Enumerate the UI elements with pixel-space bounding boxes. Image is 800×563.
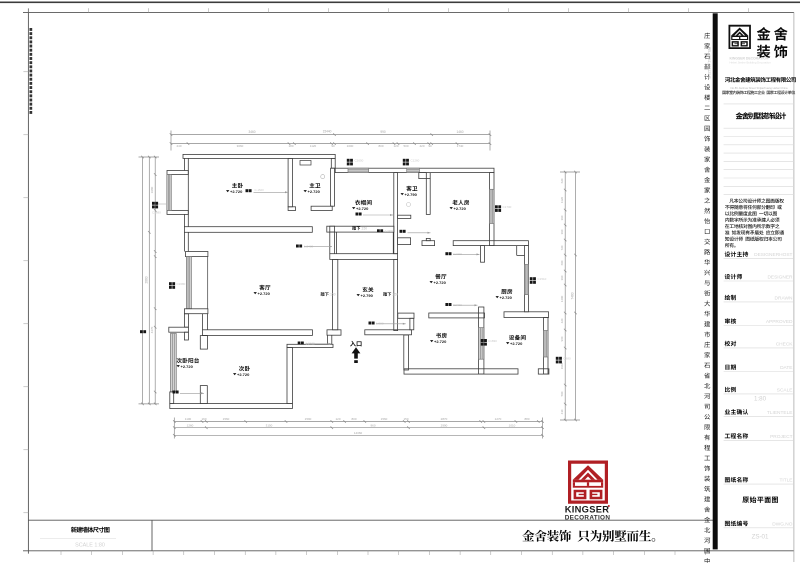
svg-text:TEL:(0311)85212345: TEL:(0311)85212345 (707, 47, 711, 79)
svg-text:+2.790: +2.790 (361, 293, 374, 298)
svg-text:C2400: C2400 (453, 303, 462, 307)
svg-text:C1510: C1510 (538, 277, 547, 281)
svg-text:420: 420 (560, 318, 564, 323)
svg-text:DESIGNER: DESIGNER (767, 275, 793, 281)
svg-text:2860: 2860 (144, 276, 148, 283)
svg-text:1590: 1590 (305, 417, 312, 421)
svg-text:2870: 2870 (441, 417, 448, 421)
svg-text:DESIGNERHOST: DESIGNERHOST (754, 252, 792, 258)
svg-text:1000: 1000 (347, 144, 354, 148)
svg-text:C2680: C2680 (177, 282, 186, 286)
svg-text:No.86 Jianhua Street Shijiazhu: No.86 Jianhua Street Shijiazhuang Hebei … (731, 86, 788, 90)
svg-text:SCALE 1:80: SCALE 1:80 (75, 543, 105, 549)
svg-text:3460: 3460 (248, 130, 255, 134)
svg-text:C2050: C2050 (355, 159, 364, 163)
svg-text:410: 410 (560, 409, 564, 414)
svg-text:SCALE: SCALE (777, 388, 793, 394)
svg-text:+2.720: +2.720 (356, 206, 369, 211)
svg-text:120: 120 (393, 144, 398, 148)
svg-text:DWG.NO: DWG.NO (772, 521, 793, 527)
svg-text:ZS-01: ZS-01 (752, 534, 769, 541)
svg-text:C880: C880 (564, 357, 572, 361)
svg-text:1270: 1270 (495, 417, 502, 421)
svg-text:+2.720: +2.720 (500, 295, 513, 300)
svg-text:1260: 1260 (187, 423, 194, 427)
svg-text::150: :150 (361, 227, 367, 231)
svg-text:+2.720: +2.720 (434, 339, 447, 344)
svg-text:500: 500 (403, 144, 408, 148)
svg-text:TLIENTELE: TLIENTELE (767, 410, 793, 416)
svg-text:+2.720: +2.720 (308, 189, 321, 194)
svg-text:DATE: DATE (780, 365, 792, 371)
svg-text:15440: 15440 (323, 130, 332, 134)
svg-text:390: 390 (560, 275, 564, 280)
svg-text:1740: 1740 (457, 144, 464, 148)
svg-text:KINGSER: KINGSER (565, 504, 609, 514)
svg-text:720: 720 (560, 245, 564, 250)
svg-text:90: 90 (331, 144, 335, 148)
svg-text:180: 180 (288, 144, 293, 148)
svg-text:+2.790: +2.790 (405, 192, 418, 197)
svg-text:1010: 1010 (509, 423, 516, 427)
svg-text:1460: 1460 (456, 130, 463, 134)
svg-text:+2.720: +2.720 (434, 280, 447, 285)
svg-text:1120: 1120 (560, 197, 564, 204)
svg-text:1120: 1120 (310, 144, 317, 148)
svg-text:APPROVED: APPROVED (766, 319, 793, 325)
svg-text:880: 880 (524, 417, 529, 421)
svg-text::150: :150 (392, 293, 398, 297)
svg-text:C1680: C1680 (152, 211, 161, 215)
svg-text:120: 120 (335, 417, 340, 421)
svg-text:C1260: C1260 (411, 159, 420, 163)
svg-text:1:900: 1:900 (376, 321, 384, 325)
svg-text:1:80: 1:80 (754, 395, 767, 402)
svg-text:1:2750: 1:2750 (385, 229, 395, 233)
svg-text:1560: 1560 (223, 417, 230, 421)
svg-text:800: 800 (378, 144, 383, 148)
svg-text:C2400: C2400 (453, 252, 462, 256)
svg-text:90: 90 (428, 144, 432, 148)
svg-text:DECORATION: DECORATION (565, 514, 611, 521)
svg-text:500: 500 (560, 391, 564, 396)
svg-text:620: 620 (560, 178, 564, 183)
svg-text:PROJECT: PROJECT (770, 434, 792, 440)
svg-text:240: 240 (176, 144, 181, 148)
svg-text:+2.720: +2.720 (454, 206, 467, 211)
svg-text:C1830: C1830 (488, 339, 497, 343)
svg-text:1910: 1910 (560, 362, 564, 369)
svg-text:390: 390 (560, 229, 564, 234)
svg-text:3060: 3060 (237, 144, 244, 148)
svg-text:DRAWN: DRAWN (775, 296, 793, 302)
svg-text:+2.720: +2.720 (258, 291, 271, 296)
svg-text:160: 160 (201, 417, 206, 421)
svg-text:960: 960 (370, 423, 375, 427)
svg-text:Hebei Jinshe Building Decorati: Hebei Jinshe Building Decoration (730, 60, 772, 64)
svg-text:+2.720: +2.720 (181, 364, 194, 369)
svg-text:600: 600 (560, 260, 564, 265)
svg-text:C-1520: C-1520 (255, 188, 265, 192)
svg-text:7460: 7460 (571, 292, 575, 299)
svg-text:+2.720: +2.720 (237, 372, 250, 377)
svg-text:+2.720: +2.720 (510, 341, 523, 346)
svg-text:800: 800 (351, 417, 356, 421)
svg-text:150: 150 (403, 417, 408, 421)
svg-text:960: 960 (560, 336, 564, 341)
svg-text:390: 390 (560, 215, 564, 220)
svg-text:1560: 1560 (381, 417, 388, 421)
svg-text:1400: 1400 (560, 295, 564, 302)
svg-text:4470: 4470 (150, 326, 154, 333)
svg-text:3150: 3150 (266, 423, 273, 427)
svg-text:CHECK: CHECK (776, 342, 794, 348)
svg-text:1:2400: 1:2400 (306, 341, 316, 345)
svg-text:14360: 14360 (354, 431, 363, 435)
svg-text:+2.720: +2.720 (230, 189, 243, 194)
svg-text:420: 420 (419, 144, 424, 148)
svg-text:990: 990 (380, 130, 386, 134)
svg-text:C1700: C1700 (503, 205, 512, 209)
svg-text:1100: 1100 (185, 417, 192, 421)
svg-text:2990: 2990 (441, 423, 448, 427)
svg-text::150: :150 (329, 293, 335, 297)
svg-text:1980: 1980 (150, 186, 154, 193)
svg-text:TITLE: TITLE (779, 478, 792, 484)
